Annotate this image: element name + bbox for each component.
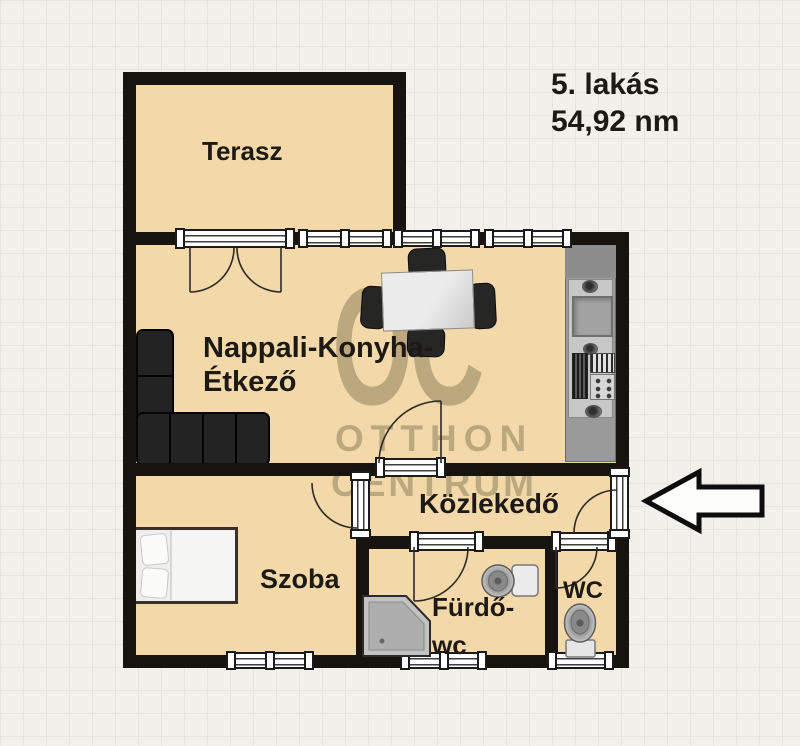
nappali-window: [394, 230, 479, 247]
terasz-double-door: [176, 229, 294, 248]
apartment-number: 5. lakás: [551, 66, 679, 103]
sink-icon: [572, 296, 613, 337]
room-label-furdo: Fürdő- wc: [432, 588, 514, 664]
window-mullion: [523, 229, 533, 248]
apartment-area: 54,92 nm: [551, 103, 679, 140]
kitchen-counter-top: [565, 245, 616, 278]
entrance-arrow-icon: [646, 472, 762, 530]
sofa-icon: [136, 412, 270, 466]
page-title: 5. lakás 54,92 nm: [551, 66, 679, 140]
szoba-door: [351, 472, 370, 538]
entrance-door: [610, 468, 629, 538]
room-label-szoba: Szoba: [260, 564, 340, 595]
stove-knobs-icon: [590, 374, 615, 400]
room-label-nappali: Nappali-Konyha- Étkező: [203, 331, 433, 399]
szoba-window: [227, 652, 313, 669]
pillow-icon: [139, 533, 169, 567]
wall: [393, 72, 406, 245]
wall: [123, 72, 136, 668]
watermark-text-otthon: OTTHON: [335, 420, 533, 457]
stove-grill-icon: [590, 353, 615, 373]
furdo-door: [410, 532, 483, 551]
bed-blanket: [170, 531, 235, 600]
room-label-wc: WC: [563, 577, 603, 605]
pillow-icon: [140, 567, 170, 599]
kozlekedo-door: [376, 458, 445, 477]
room-label-kozlekedo: Közlekedő: [419, 488, 559, 520]
stove-icon: [572, 353, 588, 399]
wall: [123, 72, 406, 85]
wall: [616, 232, 629, 668]
room-label-terasz: Terasz: [202, 136, 282, 167]
bed-icon: [133, 527, 238, 604]
faucet-knob-icon: [582, 280, 598, 293]
wc-door: [552, 532, 616, 551]
wall: [130, 463, 616, 476]
wall: [545, 536, 558, 668]
window-mullion: [340, 229, 350, 248]
nappali-window: [485, 230, 571, 247]
window-mullion: [265, 651, 275, 670]
window-mullion: [432, 229, 442, 248]
faucet-knob-icon: [585, 405, 602, 418]
terasz-window: [299, 230, 391, 247]
dining-table-icon: [381, 269, 475, 331]
floor-plan: OC OTTHON CENTRUM: [0, 0, 800, 746]
wc-window: [548, 652, 613, 669]
